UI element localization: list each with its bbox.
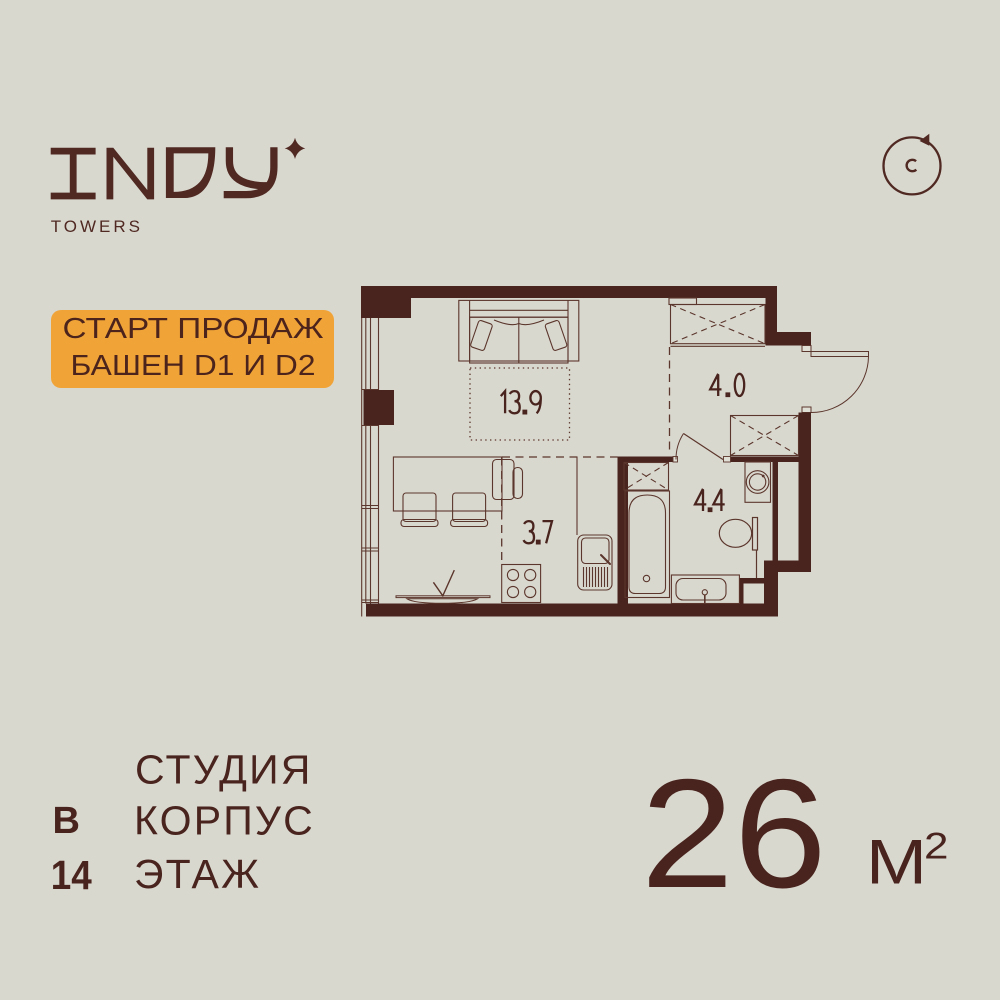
svg-text:2: 2 <box>924 826 949 867</box>
svg-text:TOWERS: TOWERS <box>51 217 143 236</box>
svg-text:СТАРТ ПРОДАЖ: СТАРТ ПРОДАЖ <box>63 313 324 345</box>
svg-text:М: М <box>866 828 927 898</box>
svg-text:СТУДИЯ: СТУДИЯ <box>135 747 313 793</box>
svg-text:БАШЕН D1 И D2: БАШЕН D1 И D2 <box>71 350 316 382</box>
svg-text:В: В <box>53 800 80 842</box>
svg-text:ЭТАЖ: ЭТАЖ <box>134 851 261 897</box>
svg-text:26: 26 <box>641 747 827 920</box>
svg-text:КОРПУС: КОРПУС <box>134 798 315 844</box>
svg-text:14: 14 <box>51 852 92 898</box>
